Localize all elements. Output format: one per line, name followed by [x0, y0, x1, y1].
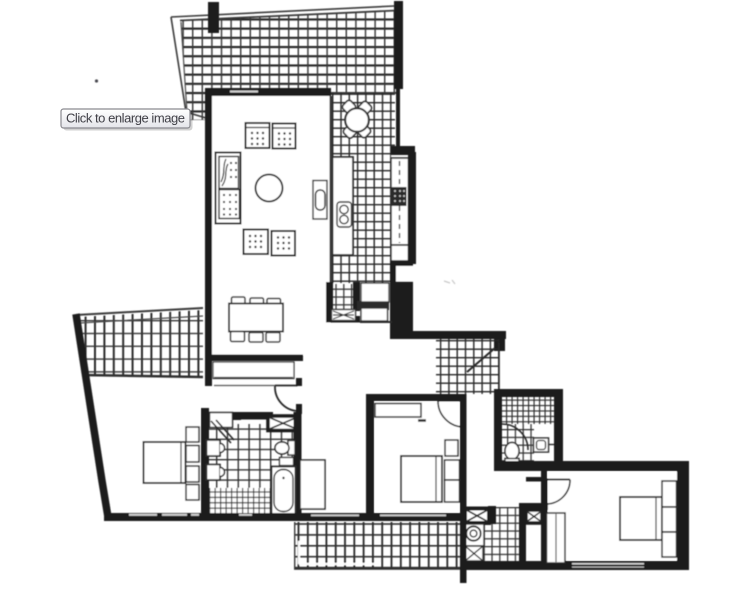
svg-text:Click to enlarge image: Click to enlarge image	[66, 111, 185, 126]
